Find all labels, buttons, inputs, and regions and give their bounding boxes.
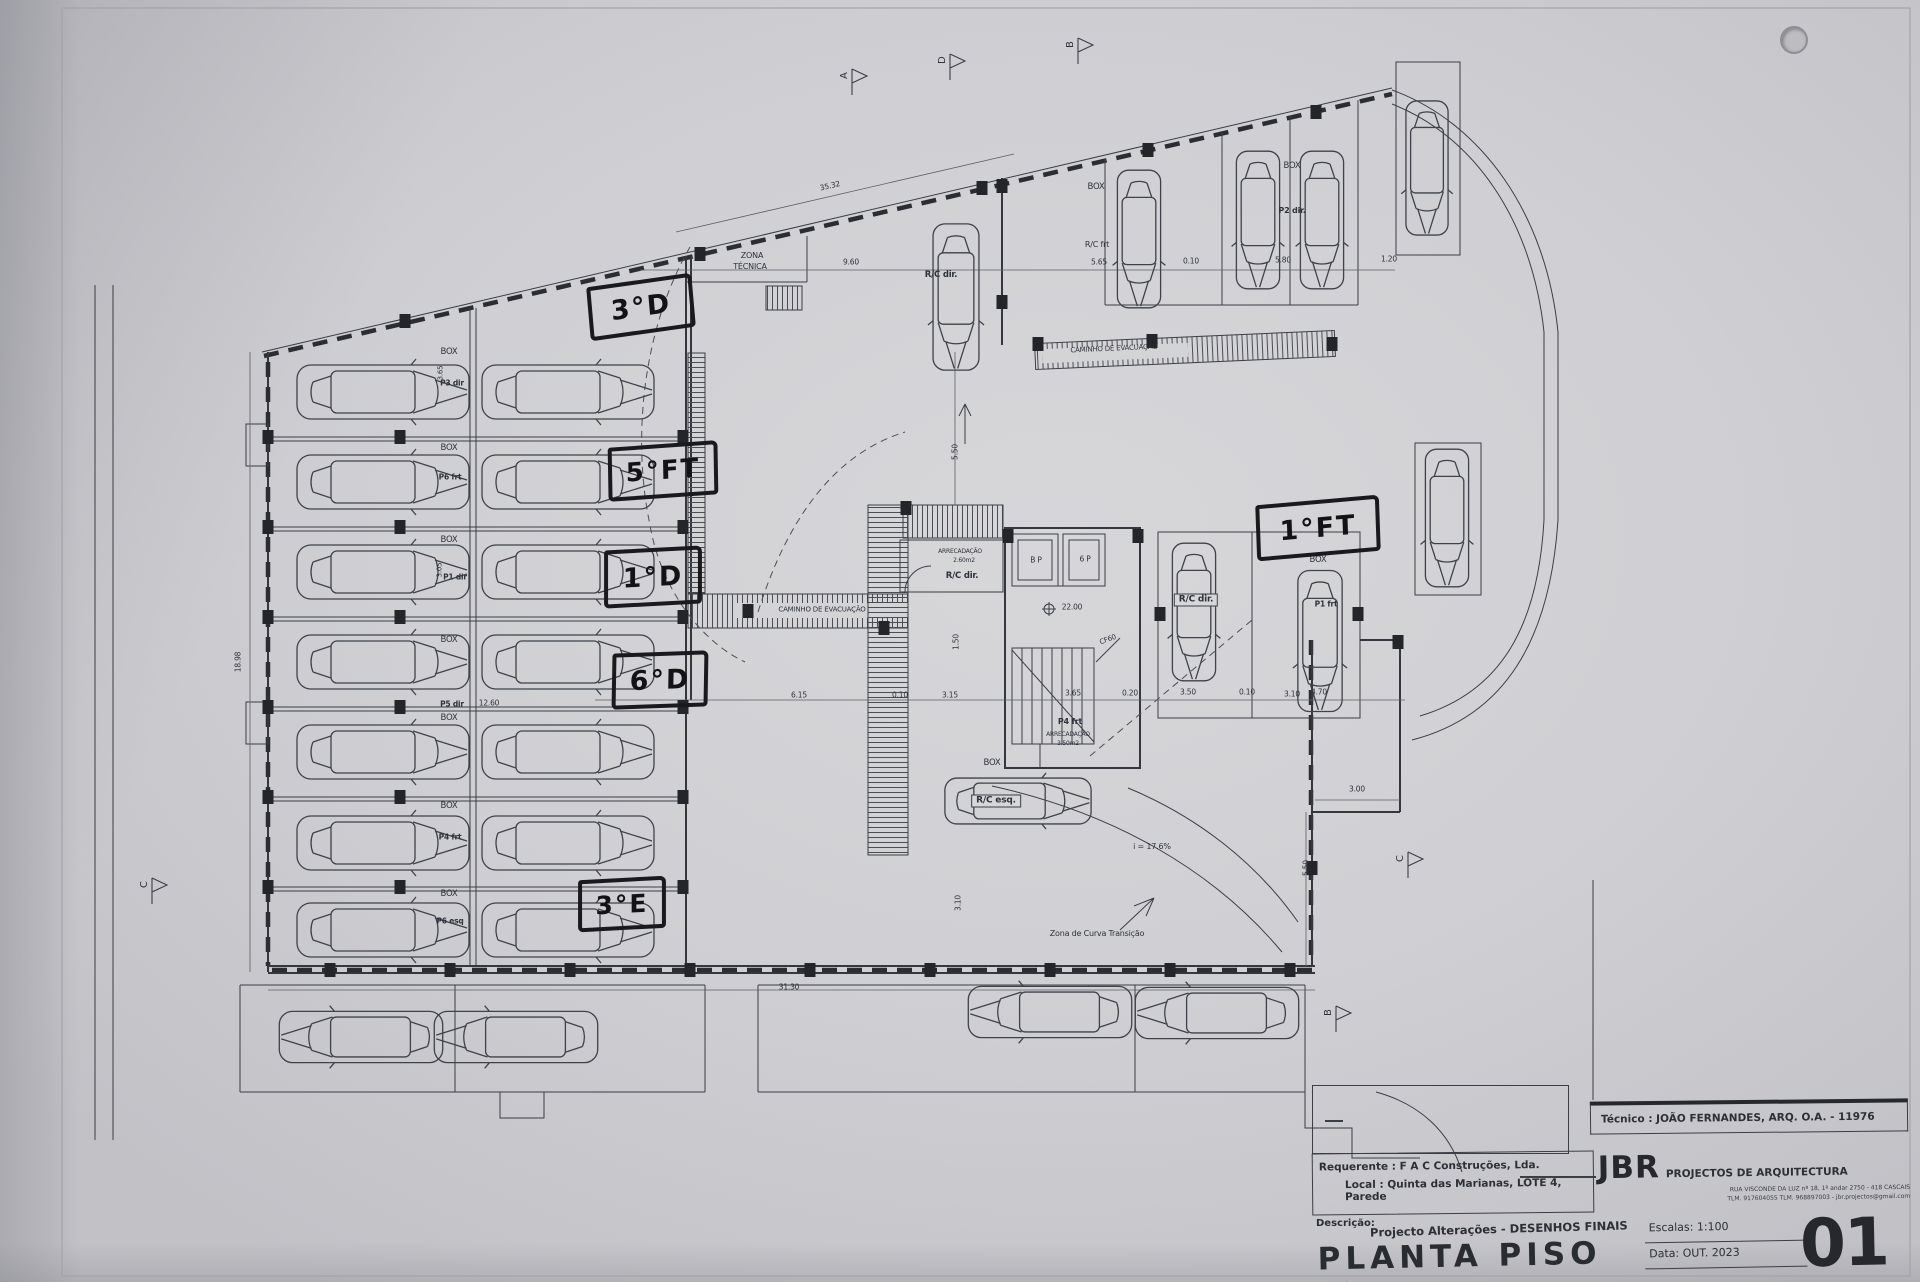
car-glyph [297,719,469,785]
structural-column [1155,607,1166,621]
section-marker-letter: C [139,881,150,888]
structural-column [445,963,456,977]
stair-hatch [766,286,802,310]
structural-column [1327,337,1338,351]
section-marker: A [839,69,867,95]
section-marker-letter: B [1065,41,1076,48]
plan-label: 5.65 [1091,258,1107,266]
structural-column [565,963,576,977]
plan-label: Zona de Curva Transição [1050,930,1145,938]
structural-column [395,430,406,444]
handwritten-annotation: 6°D [612,650,709,709]
car-glyph [928,224,984,370]
plan-label: CAMINHO DE EVACUAÇÃO [778,607,865,614]
plan-label: BOX [983,759,1000,768]
plan-label: 0.10 [892,691,908,699]
plan-label: P4 frt [1058,718,1082,726]
structural-column [997,295,1008,309]
scale-field: Escalas: 1:100 [1645,1215,1807,1244]
plan-label: 5.80 [1275,256,1291,264]
plan-label: 3.15 [942,691,958,699]
plan-label: 12.60 [479,699,499,707]
plan-label: BOX [440,714,457,723]
structural-column [977,181,988,195]
plan-label: BOX [440,444,457,453]
street-edge [1544,332,1558,520]
car-glyph [1296,151,1349,289]
section-marker-letter: C [1395,855,1406,862]
structural-column [1045,963,1056,977]
structural-column [263,610,274,624]
plan-label: BOX [1309,556,1326,565]
plan-label: 2.60m2 [953,558,975,564]
plan-label: 22.00 [1062,603,1082,611]
section-marker-letter: A [839,72,850,79]
structural-column [263,880,274,894]
plan-label: 18.98 [234,652,242,672]
plan-label: 9.60 [843,258,859,266]
direction-arrow [959,404,971,444]
sheet-margin-lines [95,285,113,1140]
dimension-lines [250,154,1405,990]
drawing-title: PLANTA PISO -2 [1317,1235,1648,1282]
structural-column [678,520,689,534]
car-glyph [482,719,654,785]
plan-label: 6.15 [791,691,807,699]
plan-label: P5 dir [440,700,464,708]
level-marker-cross [1042,602,1056,616]
plan-label: 6 P [1079,555,1090,563]
structural-column [263,790,274,804]
plan-label: 0.10 [1183,257,1199,265]
date-field: Data: OUT. 2023 [1645,1241,1807,1270]
street-curve-top [1392,90,1558,332]
structural-column [901,501,912,515]
revision-dash [1325,1120,1343,1122]
parking-spine-wall [470,308,476,966]
structural-column [743,604,754,618]
plan-label: 0.20 [1122,689,1138,697]
plan-label: 1.20 [1381,255,1397,263]
structural-column [1311,105,1322,119]
door-swing [905,566,931,592]
plan-label: R/C dir. [1174,594,1218,607]
structural-column [1353,607,1364,621]
plan-label: BOX [440,536,457,545]
section-marker: C [1395,852,1423,878]
plan-label: BOX [440,636,457,645]
top-stall-walls [1105,100,1358,305]
car-glyph [297,449,469,515]
structural-column [263,430,274,444]
car-glyph [1232,151,1285,289]
structural-column [1143,143,1154,157]
plan-label: P2 dir. [1278,207,1305,215]
structural-column [395,880,406,894]
plan-label: 3.50m2 [1057,741,1079,747]
plan-label: BOX [440,802,457,811]
structural-column [263,520,274,534]
plan-label: 4.70 [1311,688,1327,696]
stub [500,1092,544,1118]
plan-label: 3.65 [438,366,445,381]
plan-label: ARRECADAÇÃO [938,549,982,555]
handwritten-annotation: 1°D [604,545,702,608]
ramp-curve [1128,788,1298,922]
structural-column [685,963,696,977]
plan-label: ZONA [741,252,763,260]
car-glyph [1168,543,1221,681]
section-marker-letter: D [937,56,948,64]
photographed-floor-plan-sheet: ADBCCB ZONATÉCNICACAMINHO DE EVACUAÇÃOCA… [0,0,1920,1282]
structural-column [805,963,816,977]
plan-label: P6 frt [439,473,462,481]
plan-label: 3.65 [1065,689,1081,697]
structural-column [1033,337,1044,351]
structural-column [395,790,406,804]
plan-label: 3.10 [1284,690,1300,698]
car-glyph [482,359,654,425]
plan-label: 5.50 [1302,860,1310,876]
plan-label: R/C esq. [971,795,1021,808]
direction-arrow [1120,898,1154,930]
sheet-number: 01 [1799,1203,1915,1282]
plan-label: BOX [1087,183,1104,192]
plan-label: 3.00 [1349,785,1365,793]
structural-column [1003,529,1014,543]
structural-column [400,314,411,328]
plan-label: R/C frt [1085,241,1109,249]
plan-label: TÉCNICA [733,263,767,271]
plan-label: R/C dir. [925,271,957,280]
structural-column [395,700,406,714]
car-glyph [297,897,469,963]
plan-label: P1 dir [443,573,467,581]
scale-date-box: Escalas: 1:100 Data: OUT. 2023 [1645,1215,1808,1272]
core-wall-hatch [903,505,1003,538]
sheet-border [62,8,1910,1276]
plan-label: R/C dir. [946,572,978,581]
firm-name: PROJECTOS DE ARQUITECTURA [1666,1166,1848,1181]
structural-column [1165,963,1176,977]
structural-column [678,610,689,624]
plan-label: BOX [440,890,457,899]
revision-box [1312,1085,1569,1154]
section-marker: D [937,54,965,80]
plan-label: i = 17.6% [1133,843,1171,851]
structural-column [325,963,336,977]
ramp-curve [992,786,1282,952]
structural-column [997,179,1008,193]
structural-column [925,963,936,977]
plan-label: ARRECADAÇÃO [1046,732,1090,738]
punch-hole [1780,26,1808,54]
structural-column [678,790,689,804]
boundary-dashed [264,94,1392,356]
structural-column [1393,635,1404,649]
section-marker: C [139,878,167,904]
handwritten-annotation: 5°FT [608,440,719,502]
handwritten-annotation: 1°FT [1255,495,1380,562]
plan-label: 5.50 [951,444,959,460]
car-glyph [1421,449,1474,587]
descricao-label: Descrição: [1316,1218,1375,1229]
section-marker-letter: B [1323,1009,1334,1016]
technician-field: Técnico : JOÃO FERNANDES, ARQ. O.A. - 11… [1590,1098,1908,1134]
plan-label: BOX [1283,162,1300,171]
structural-column [1133,529,1144,543]
plan-label: 3.10 [954,895,962,911]
structural-column [1285,963,1296,977]
plan-label: P6 esq [436,917,463,925]
car-glyph [297,810,469,876]
plan-label: BOX [440,348,457,357]
plan-label: 0.10 [1239,688,1255,696]
titleblock-rule [1520,1176,1596,1178]
plan-label: P4 frt [439,833,462,841]
structural-column [395,610,406,624]
structural-column [695,247,706,261]
car-glyph [1113,170,1166,308]
firm-initials: JBR [1598,1149,1661,1186]
handwritten-annotation: 3°E [578,876,666,933]
plan-label: P1 frt [1315,600,1338,608]
plan-label: 31.30 [779,983,799,991]
ramp-hatch [868,505,908,855]
structural-column [263,700,274,714]
car-glyph [434,1006,597,1069]
plan-label: 3.50 [1180,688,1196,696]
car-glyph [279,1006,442,1069]
client-box: Requerente : F A C Construções, Lda. Loc… [1312,1151,1595,1216]
plan-label: B P [1030,556,1041,564]
outside-stalls-left [240,985,705,1092]
plan-label: 1.50 [952,634,960,650]
section-marker: B [1323,1006,1351,1032]
plan-label: 3.05 [437,563,444,578]
car-glyph [482,810,654,876]
section-marker: B [1065,38,1093,64]
structural-column [678,880,689,894]
structural-column [879,621,890,635]
car-glyph [1135,982,1298,1045]
structural-column [395,520,406,534]
